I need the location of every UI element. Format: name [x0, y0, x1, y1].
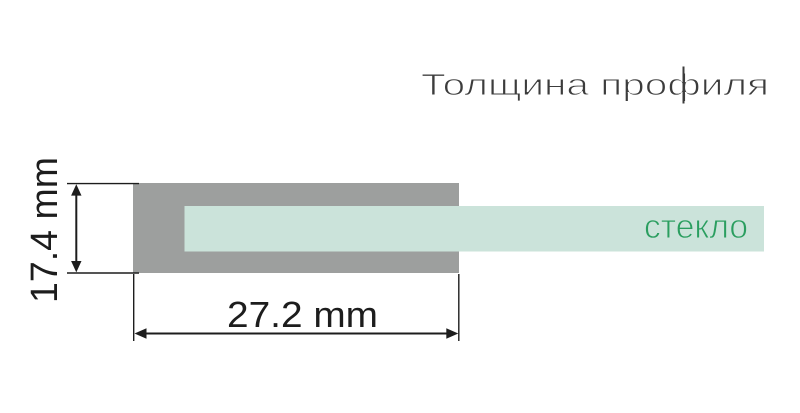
svg-text:27.2 mm: 27.2 mm — [227, 294, 378, 335]
svg-text:17.4 mm: 17.4 mm — [24, 157, 66, 303]
svg-text:Толщина профиля: Толщина профиля — [421, 67, 769, 102]
svg-text:стекло: стекло — [644, 208, 748, 246]
